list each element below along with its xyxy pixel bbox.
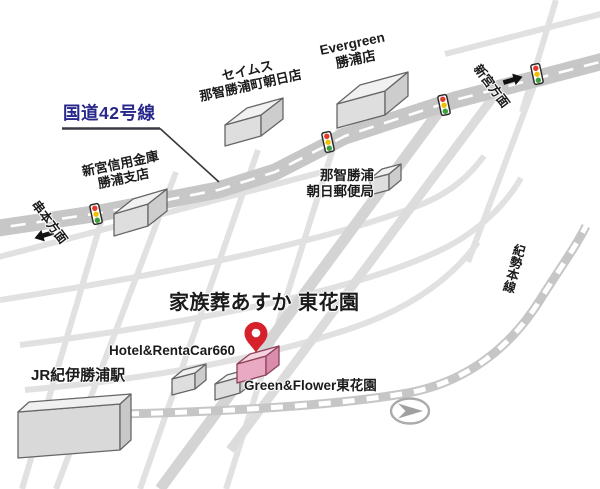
label-green-flower: Green&Flower東花園 bbox=[244, 378, 377, 394]
building-post-office bbox=[370, 164, 401, 195]
building-seimusu bbox=[225, 98, 283, 146]
destination-title: 家族葬あすか 東花園 bbox=[169, 292, 360, 316]
label-post-office: 那智勝浦 朝日郵便局 bbox=[300, 168, 374, 200]
label-hotel: Hotel&RentaCar660 bbox=[109, 343, 235, 359]
building-station bbox=[18, 394, 131, 458]
post-office-line2: 朝日郵便局 bbox=[300, 184, 374, 200]
travel-direction-icon bbox=[391, 399, 429, 424]
post-office-line1: 那智勝浦 bbox=[300, 168, 374, 184]
building-shingu-bank bbox=[114, 189, 167, 236]
route42-label: 国道42号線 bbox=[63, 103, 155, 124]
access-map: 国道42号線 セイムス 那智勝浦町朝日店 Evergreen 勝浦店 新宮信用金… bbox=[0, 0, 600, 489]
label-station: JR紀伊勝浦駅 bbox=[31, 367, 125, 385]
